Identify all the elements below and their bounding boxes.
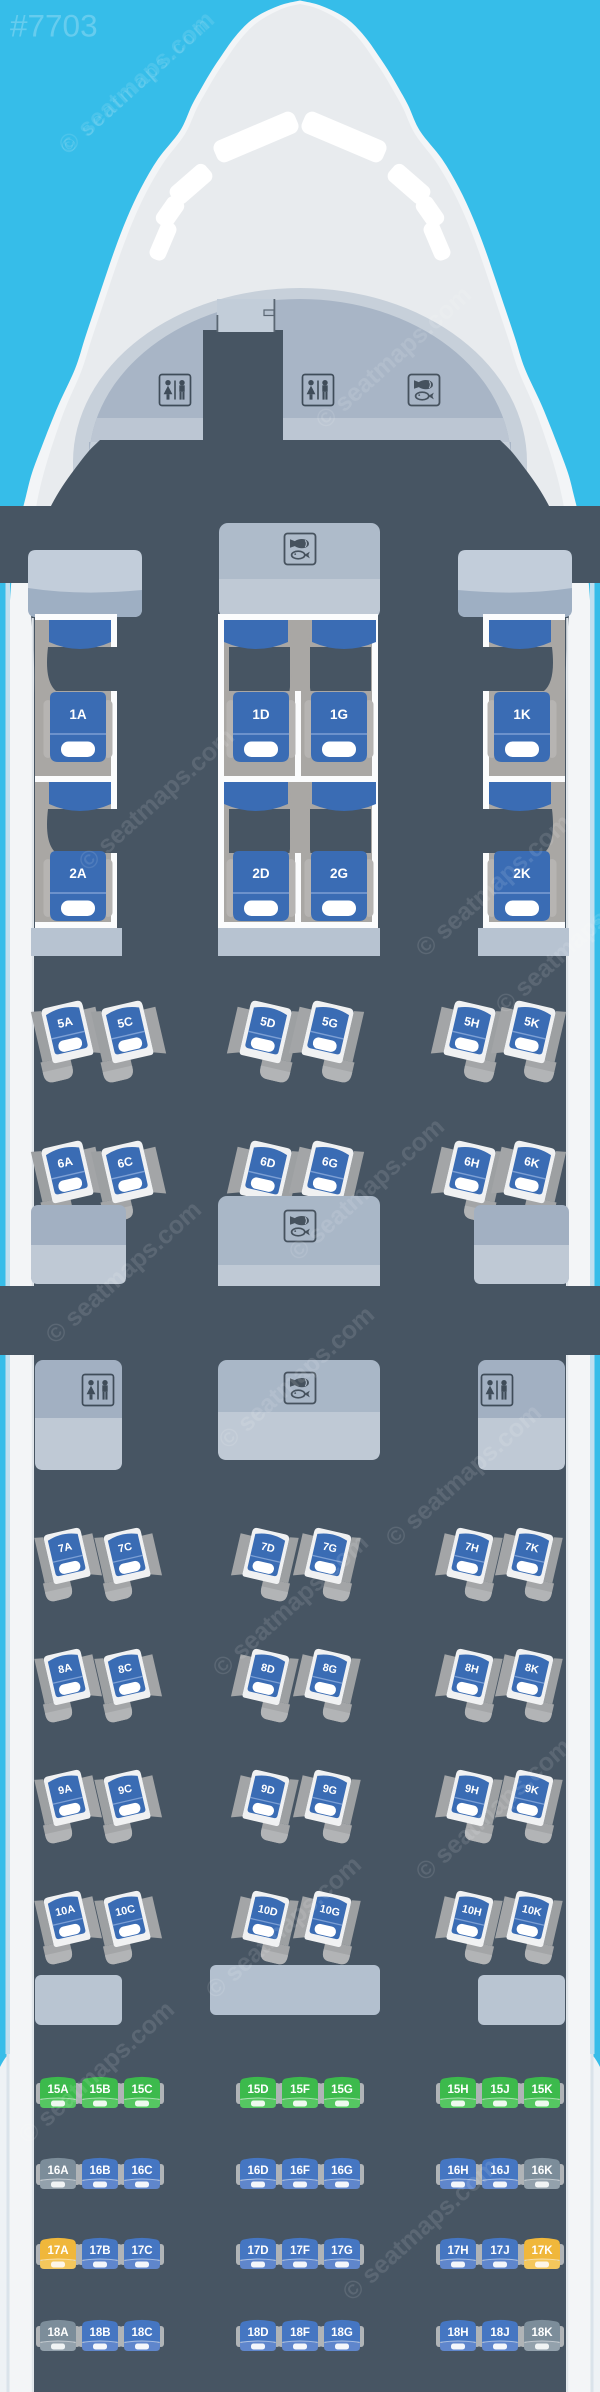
svg-text:1D: 1D <box>252 707 270 722</box>
svg-text:16G: 16G <box>331 2165 353 2177</box>
svg-text:1G: 1G <box>330 707 348 722</box>
svg-text:17J: 17J <box>490 2245 509 2257</box>
svg-text:15J: 15J <box>490 2084 509 2096</box>
svg-text:18G: 18G <box>331 2327 353 2339</box>
svg-text:16A: 16A <box>47 2165 68 2177</box>
svg-text:18B: 18B <box>89 2327 110 2339</box>
svg-text:1A: 1A <box>69 707 87 722</box>
svg-text:15H: 15H <box>447 2084 468 2096</box>
svg-text:16F: 16F <box>290 2165 310 2177</box>
svg-text:17C: 17C <box>131 2245 152 2257</box>
svg-text:18K: 18K <box>531 2327 553 2339</box>
svg-text:15D: 15D <box>247 2084 268 2096</box>
svg-text:18C: 18C <box>131 2327 152 2339</box>
svg-text:16K: 16K <box>531 2165 553 2177</box>
svg-text:2G: 2G <box>330 866 348 881</box>
svg-text:2D: 2D <box>252 866 270 881</box>
svg-text:17B: 17B <box>89 2245 110 2257</box>
svg-text:15F: 15F <box>290 2084 310 2096</box>
svg-text:17K: 17K <box>531 2245 553 2257</box>
svg-text:15K: 15K <box>531 2084 553 2096</box>
svg-text:16B: 16B <box>89 2165 110 2177</box>
svg-text:18J: 18J <box>490 2327 509 2339</box>
svg-text:17F: 17F <box>290 2245 310 2257</box>
svg-text:#7703: #7703 <box>10 8 98 44</box>
svg-text:18D: 18D <box>247 2327 268 2339</box>
svg-text:15G: 15G <box>331 2084 353 2096</box>
svg-text:17D: 17D <box>247 2245 268 2257</box>
svg-text:1K: 1K <box>513 707 531 722</box>
svg-text:17G: 17G <box>331 2245 353 2257</box>
svg-text:15C: 15C <box>131 2084 152 2096</box>
svg-text:18F: 18F <box>290 2327 310 2339</box>
svg-text:18A: 18A <box>47 2327 68 2339</box>
svg-text:16D: 16D <box>247 2165 268 2177</box>
svg-text:18H: 18H <box>447 2327 468 2339</box>
svg-text:17A: 17A <box>47 2245 68 2257</box>
svg-text:17H: 17H <box>447 2245 468 2257</box>
svg-text:16C: 16C <box>131 2165 152 2177</box>
